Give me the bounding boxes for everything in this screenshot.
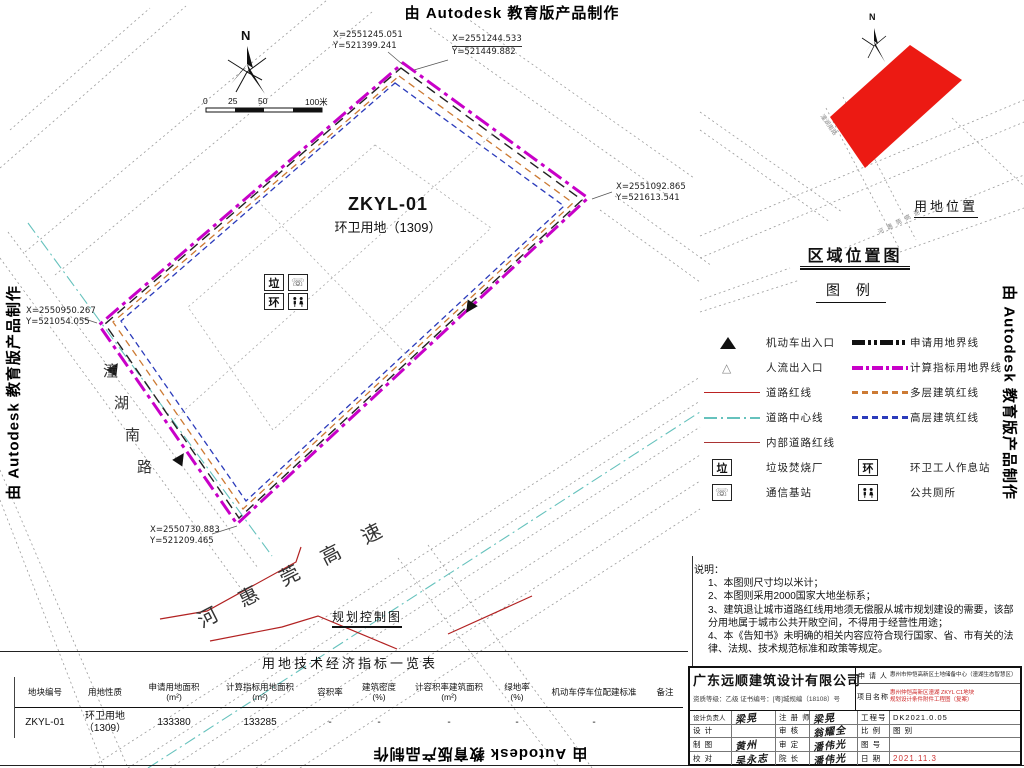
- vehicle-entrance-markers: [106, 300, 478, 467]
- legend-label: 垃圾焚烧厂: [766, 460, 852, 475]
- proofread-signature: 吴永志: [732, 752, 776, 766]
- check-label: 审 核: [776, 725, 810, 739]
- sanitation-station-icon: 环: [264, 293, 284, 310]
- table-cell: -: [541, 708, 647, 738]
- garbage-station-icon: 垃: [264, 274, 284, 291]
- south-road-char-2: 湖: [114, 392, 129, 413]
- inset-location-label: 用地位置: [914, 196, 978, 218]
- sheet-type-label: 图 别: [890, 725, 1020, 739]
- table-cell: -: [493, 708, 541, 738]
- col-header: 备注: [647, 677, 683, 708]
- applied-land-boundary-line: [105, 68, 582, 518]
- legend-label: 道路中心线: [766, 410, 852, 425]
- col-header: 用地性质: [75, 677, 135, 708]
- design-company-name: 广东远顺建筑设计有限公司: [693, 670, 852, 689]
- legend-label: 申请用地界线: [910, 335, 1022, 350]
- design-label: 设 计: [690, 725, 732, 739]
- legend-label: 公共厕所: [910, 485, 1022, 500]
- inset-north-label: N: [869, 12, 876, 22]
- table-cell: 环卫用地 （1309）: [75, 708, 135, 738]
- table-title: 用地技术经济指标一览表: [14, 653, 686, 672]
- coordinate-west: X=2550950.267Y=521054.055: [26, 306, 96, 328]
- multistorey-building-red-line: [113, 76, 573, 509]
- scale-label: 比 例: [858, 725, 890, 739]
- table-cell: -: [353, 708, 405, 738]
- site-facility-icons: 垃 ☏ 环: [264, 274, 310, 310]
- south-road-char-4: 路: [137, 456, 152, 477]
- inset-north-compass: [862, 28, 886, 62]
- public-toilet-icon: [288, 293, 308, 310]
- notes-left-rule: [692, 556, 693, 666]
- col-header: 计算指标用地面积 (m²): [213, 677, 307, 708]
- table-separator-line: [0, 651, 688, 652]
- north-label: N: [241, 28, 250, 43]
- proofread-label: 校 对: [690, 752, 732, 766]
- scale-tick-100: 100米: [305, 96, 328, 108]
- legend-label: 道路红线: [766, 385, 852, 400]
- coordinate-south: X=2550730.883Y=521209.465: [150, 525, 220, 547]
- col-header: 绿地率 (%): [493, 677, 541, 708]
- toilet-pictogram: [290, 296, 306, 308]
- note-item: 3、建筑退让城市道路红线用地须无偿服从城市规划建设的需要，该部分用地属于城市公共…: [708, 604, 1018, 630]
- dean-signature: 潘伟光: [810, 752, 858, 766]
- registered-label: 注 册 师: [776, 711, 810, 725]
- note-item: 2、本图则采用2000国家大地坐标系；: [708, 590, 1018, 603]
- project-number-label: 工程号: [858, 711, 890, 725]
- telecom-station-legend-icon: ☏: [704, 486, 766, 500]
- figure-number-label: 图 号: [858, 738, 890, 752]
- col-header: 建筑密度 (%): [353, 677, 405, 708]
- col-header: 计容积率建筑面积 (m²): [405, 677, 493, 708]
- col-header: 容积率: [307, 677, 353, 708]
- coordinate-top-b: X=2551244.533Y=521449.882: [452, 34, 522, 58]
- inset-site-red-polygon: [830, 45, 962, 168]
- legend-label: 计算指标用地界线: [910, 360, 1022, 375]
- autodesk-watermark-bottom: 由 Autodesk 教育版产品制作: [330, 744, 630, 765]
- table-cell: [647, 708, 683, 738]
- figure-number-value: [890, 738, 1020, 752]
- lead-designer-signature: 梁晃: [732, 711, 776, 725]
- legend-label: 多层建筑红线: [910, 385, 1022, 400]
- legend-label: 环卫工人作息站: [910, 460, 1022, 475]
- road-center-line-icon: [704, 411, 766, 425]
- multistorey-red-line-icon: [852, 386, 910, 400]
- scale-tick-25: 25: [228, 96, 237, 106]
- legend-label: 高层建筑红线: [910, 410, 1022, 425]
- dean-label: 院 长: [776, 752, 810, 766]
- legend: 机动车出入口 申请用地界线 △ 人流出入口 计算指标用地界线 道路红线 多层建筑…: [704, 330, 1022, 505]
- garbage-station-legend-icon: 垃: [704, 461, 766, 475]
- coordinate-top-a: X=2551245.051Y=521399.241: [333, 30, 403, 52]
- legend-label: 人流出入口: [766, 360, 852, 375]
- note-item: 1、本图则尺寸均以米计；: [708, 577, 1018, 590]
- applicant-label: 申 请 人: [856, 671, 890, 681]
- autodesk-watermark-left: 由 Autodesk 教育版产品制作: [3, 243, 24, 543]
- site-use-label: 环卫用地（1309）: [308, 217, 468, 236]
- pedestrian-entrance-icon: △: [704, 361, 766, 375]
- table-cell: -: [307, 708, 353, 738]
- coordinate-east: X=2551092.865Y=521613.541: [616, 182, 686, 204]
- table-cell: 133285: [213, 708, 307, 738]
- applied-land-boundary-icon: [852, 336, 910, 350]
- south-road-char-3: 南: [125, 424, 140, 445]
- legend-title: 图 例: [816, 280, 886, 303]
- indicator-land-boundary-line: [99, 63, 588, 524]
- date-label: 日 期: [858, 752, 890, 766]
- date-value: 2021.11.3: [890, 752, 1020, 766]
- road-red-line-icon: [704, 386, 766, 400]
- note-item: 4、本《告知书》未明确的相关内容应符合现行国家、省、市有关的法律、法规、技术规范…: [708, 630, 1018, 656]
- col-header: 申请用地面积 (m²): [135, 677, 213, 708]
- indicator-table: 用地技术经济指标一览表 地块编号 用地性质 申请用地面积 (m²) 计算指标用地…: [14, 653, 686, 738]
- toilet-pictogram: [860, 487, 876, 499]
- applicant-value: 惠州市仲恺高新区土地储备中心（潼湖生态智慧区）: [890, 672, 1017, 679]
- lead-designer-label: 设计负责人: [690, 711, 732, 725]
- company-credentials: 资质等级：乙级 证书编号：[粤]城规编（18108）号: [693, 693, 852, 703]
- notes-block: 说明： 1、本图则尺寸均以米计； 2、本图则采用2000国家大地坐标系； 3、建…: [694, 564, 1018, 656]
- plan-control-map-label: 规划控制图: [332, 608, 402, 628]
- project-name-label: 项目名称: [856, 692, 890, 702]
- project-name-value: 惠州仲恺高新区潼湖 ZKYL C1地块 规划设计条件附件工程图（复案）: [890, 690, 974, 704]
- site-code-label: ZKYL-01: [318, 194, 458, 215]
- legend-label: 通信基站: [766, 485, 852, 500]
- south-road-char-1: 潼: [103, 360, 118, 381]
- legend-label: 内部道路红线: [766, 435, 852, 450]
- col-header: 地块编号: [15, 677, 75, 708]
- highrise-building-red-line: [121, 83, 564, 501]
- north-compass: [228, 46, 266, 94]
- scale-tick-0: 0: [203, 96, 208, 106]
- internal-road-red-line-icon: [704, 436, 766, 450]
- table-cell: -: [405, 708, 493, 738]
- notes-title: 说明：: [694, 564, 1018, 577]
- vehicle-entrance-icon: [704, 336, 766, 350]
- indicator-land-boundary-icon: [852, 361, 910, 375]
- project-number-value: DK2021.0.05: [890, 711, 1020, 725]
- table-cell: 133380: [135, 708, 213, 738]
- scale-bar: [206, 108, 322, 112]
- scale-tick-50: 50: [258, 96, 267, 106]
- internal-parcel-dotted-lines: [168, 131, 496, 430]
- inset-title-underline: [800, 266, 910, 267]
- autodesk-watermark-top: 由 Autodesk 教育版产品制作: [362, 2, 662, 23]
- public-toilet-legend-icon: [852, 486, 910, 500]
- table-cell: ZKYL-01: [15, 708, 75, 738]
- col-header: 机动车停车位配建标准: [541, 677, 647, 708]
- telecom-station-icon: ☏: [288, 274, 308, 291]
- draft-label: 制 图: [690, 738, 732, 752]
- approve-label: 审 定: [776, 738, 810, 752]
- legend-label: 机动车出入口: [766, 335, 852, 350]
- highrise-red-line-icon: [852, 411, 910, 425]
- title-block: 广东远顺建筑设计有限公司 资质等级：乙级 证书编号：[粤]城规编（18108）号…: [688, 666, 1022, 766]
- sanitation-station-legend-icon: 环: [852, 461, 910, 475]
